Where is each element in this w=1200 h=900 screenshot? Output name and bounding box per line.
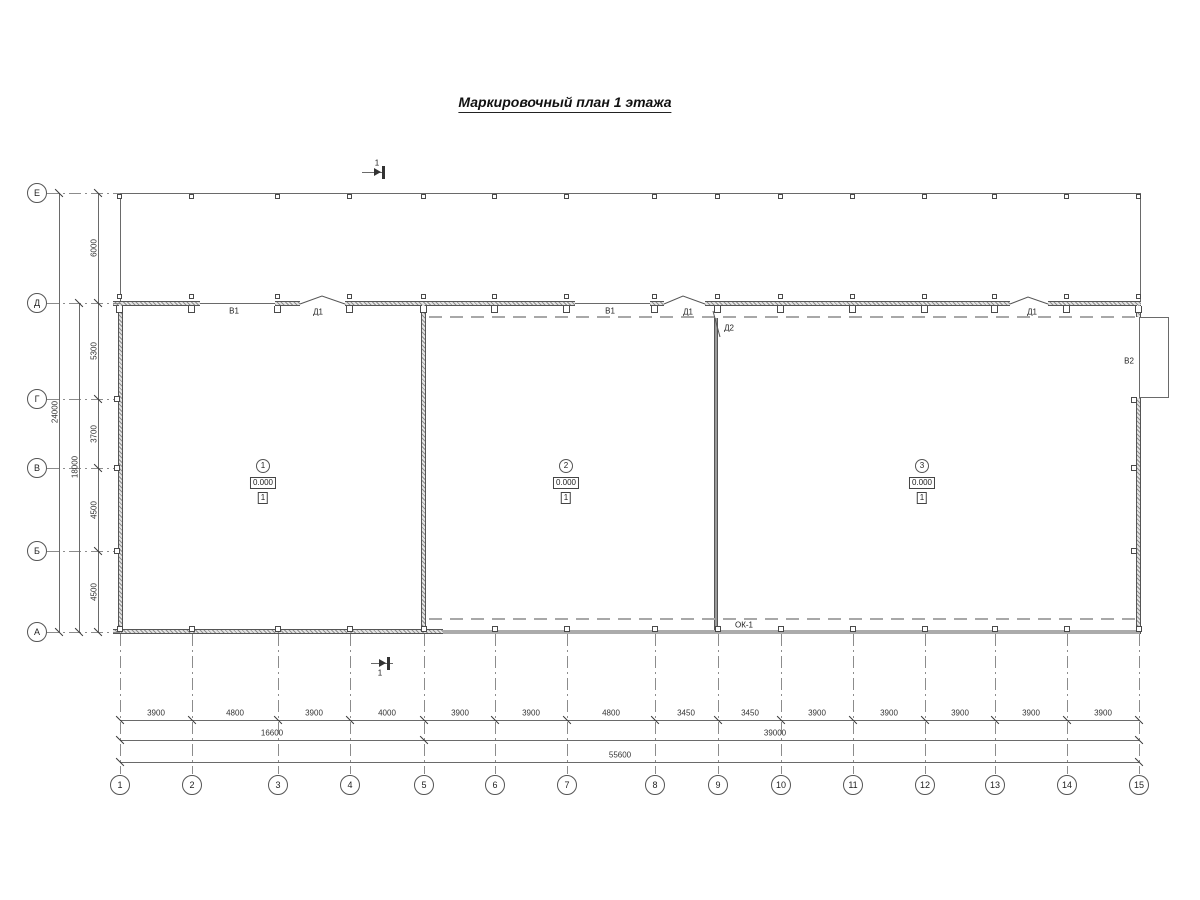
- column-symbol: [1135, 306, 1142, 313]
- dim-line: [98, 193, 99, 632]
- column-marker: [564, 294, 569, 299]
- column-marker: [492, 626, 498, 632]
- column-marker: [275, 194, 280, 199]
- col-grid-line: [1067, 634, 1068, 774]
- column-marker: [117, 294, 122, 299]
- dim-label: 3900: [522, 709, 540, 718]
- gate-label: В1: [605, 307, 615, 316]
- room-elevation: 0.000: [250, 477, 276, 489]
- column-symbol: [849, 306, 856, 313]
- grid-col-bubble: 4: [340, 775, 360, 795]
- room-floor-type: 1: [917, 492, 927, 504]
- col-grid-line: [995, 634, 996, 774]
- room-elevation: 0.000: [909, 477, 935, 489]
- column-marker: [992, 626, 998, 632]
- col-grid-line: [853, 634, 854, 774]
- section-arrow-icon: [379, 659, 386, 667]
- room-floor-type: 1: [561, 492, 571, 504]
- grid-row-bubble: Д: [27, 293, 47, 313]
- column-symbol: [1063, 306, 1070, 313]
- column-marker: [778, 294, 783, 299]
- col-grid-line: [718, 634, 719, 774]
- grid-row-bubble: Б: [27, 541, 47, 561]
- column-marker: [189, 294, 194, 299]
- section-mark-label: 1: [375, 159, 379, 168]
- grid-col-bubble: 15: [1129, 775, 1149, 795]
- col-grid-line: [655, 634, 656, 774]
- column-marker: [1064, 294, 1069, 299]
- column-marker: [189, 194, 194, 199]
- grid-row-bubble: А: [27, 622, 47, 642]
- dim-label: 4800: [602, 709, 620, 718]
- col-grid-line: [120, 634, 121, 774]
- column-marker: [275, 294, 280, 299]
- column-marker: [564, 626, 570, 632]
- column-marker: [1136, 626, 1142, 632]
- column-marker: [992, 294, 997, 299]
- door-label: Д1: [1027, 308, 1037, 317]
- column-marker: [1131, 465, 1137, 471]
- door-label: Д1: [683, 308, 693, 317]
- column-marker: [492, 194, 497, 199]
- col-grid-line: [781, 634, 782, 774]
- grid-col-bubble: 5: [414, 775, 434, 795]
- dim-label: 24000: [51, 401, 60, 423]
- dim-label: 39000: [764, 729, 786, 738]
- grid-col-bubble: 11: [843, 775, 863, 795]
- column-symbol: [563, 306, 570, 313]
- column-marker: [114, 465, 120, 471]
- col-grid-line: [192, 634, 193, 774]
- column-marker: [715, 294, 720, 299]
- column-marker: [652, 626, 658, 632]
- dim-label: 3900: [808, 709, 826, 718]
- column-marker: [850, 626, 856, 632]
- col-grid-line: [278, 634, 279, 774]
- column-symbol: [991, 306, 998, 313]
- column-marker: [652, 194, 657, 199]
- column-marker: [421, 194, 426, 199]
- column-symbol: [714, 306, 721, 313]
- column-marker: [117, 194, 122, 199]
- column-marker: [778, 626, 784, 632]
- column-marker: [117, 626, 123, 632]
- column-marker: [347, 294, 352, 299]
- gate-label: В2: [1124, 357, 1134, 366]
- grid-col-bubble: 3: [268, 775, 288, 795]
- row-grid-line: [47, 551, 120, 552]
- grid-col-bubble: 14: [1057, 775, 1077, 795]
- section-mark-label: 1: [378, 669, 382, 678]
- dim-label: 3700: [90, 425, 99, 443]
- door-label: Д2: [724, 324, 734, 333]
- window-label: ОК-1: [735, 621, 753, 630]
- column-marker: [850, 194, 855, 199]
- column-marker: [1131, 548, 1137, 554]
- section-bar: [382, 166, 385, 179]
- column-symbol: [777, 306, 784, 313]
- room-number-bubble: 2: [559, 459, 573, 473]
- col-grid-line: [350, 634, 351, 774]
- room-number-bubble: 1: [256, 459, 270, 473]
- dim-label: 18000: [71, 456, 80, 478]
- grid-row-bubble: В: [27, 458, 47, 478]
- grid-col-bubble: 9: [708, 775, 728, 795]
- column-marker: [715, 194, 720, 199]
- dim-label: 3450: [677, 709, 695, 718]
- dim-label: 16600: [261, 729, 283, 738]
- col-grid-line: [925, 634, 926, 774]
- column-marker: [114, 396, 120, 402]
- grid-row-bubble: Е: [27, 183, 47, 203]
- column-symbol: [188, 306, 195, 313]
- dim-label: 3900: [305, 709, 323, 718]
- dim-label: 4500: [90, 583, 99, 601]
- grid-col-bubble: 6: [485, 775, 505, 795]
- section-bar: [387, 657, 390, 670]
- dim-line: [120, 762, 1139, 763]
- column-symbol: [420, 306, 427, 313]
- column-symbol: [346, 306, 353, 313]
- room-number-bubble: 3: [915, 459, 929, 473]
- row-grid-line: [47, 303, 120, 304]
- grid-col-bubble: 13: [985, 775, 1005, 795]
- dim-label: 3900: [880, 709, 898, 718]
- grid-col-bubble: 12: [915, 775, 935, 795]
- column-marker: [922, 294, 927, 299]
- col-grid-line: [495, 634, 496, 774]
- dim-label: 4500: [90, 501, 99, 519]
- column-symbol: [274, 306, 281, 313]
- column-marker: [421, 294, 426, 299]
- grid-col-bubble: 7: [557, 775, 577, 795]
- dim-label: 3900: [147, 709, 165, 718]
- column-marker: [347, 194, 352, 199]
- row-grid-line: [47, 399, 120, 400]
- column-marker: [992, 194, 997, 199]
- column-marker: [922, 194, 927, 199]
- column-marker: [1064, 194, 1069, 199]
- column-marker: [1131, 397, 1137, 403]
- dim-label: 3900: [1022, 709, 1040, 718]
- dim-line: [120, 720, 1139, 721]
- column-symbol: [921, 306, 928, 313]
- grid-col-bubble: 10: [771, 775, 791, 795]
- dim-label: 3450: [741, 709, 759, 718]
- column-marker: [715, 626, 721, 632]
- grid-col-bubble: 2: [182, 775, 202, 795]
- column-symbol: [116, 306, 123, 313]
- column-marker: [189, 626, 195, 632]
- dim-label: 5300: [90, 342, 99, 360]
- section-arrow-icon: [374, 168, 381, 176]
- column-marker: [564, 194, 569, 199]
- column-marker: [850, 294, 855, 299]
- floor-plan-canvas: Маркировочный план 1 этажа В1 Д1 В1 Д1 Д…: [0, 0, 1200, 900]
- column-marker: [492, 294, 497, 299]
- door-symbols: [0, 0, 1200, 900]
- dim-label: 6000: [90, 239, 99, 257]
- column-symbol: [651, 306, 658, 313]
- dim-label: 55600: [609, 751, 631, 760]
- col-grid-line: [1139, 634, 1140, 774]
- col-grid-line: [567, 634, 568, 774]
- room-floor-type: 1: [258, 492, 268, 504]
- dim-label: 3900: [1094, 709, 1112, 718]
- gate-label: В1: [229, 307, 239, 316]
- grid-col-bubble: 8: [645, 775, 665, 795]
- column-marker: [114, 548, 120, 554]
- column-marker: [922, 626, 928, 632]
- room-elevation: 0.000: [553, 477, 579, 489]
- column-marker: [421, 626, 427, 632]
- column-symbol: [491, 306, 498, 313]
- column-marker: [1136, 294, 1141, 299]
- grid-row-bubble: Г: [27, 389, 47, 409]
- column-marker: [652, 294, 657, 299]
- column-marker: [275, 626, 281, 632]
- column-marker: [1136, 194, 1141, 199]
- door-label: Д1: [313, 308, 323, 317]
- dim-label: 3900: [951, 709, 969, 718]
- column-marker: [1064, 626, 1070, 632]
- dim-label: 4800: [226, 709, 244, 718]
- column-marker: [778, 194, 783, 199]
- dim-line: [120, 740, 1139, 741]
- grid-col-bubble: 1: [110, 775, 130, 795]
- row-grid-line: [47, 468, 120, 469]
- col-grid-line: [424, 634, 425, 774]
- dim-label: 3900: [451, 709, 469, 718]
- column-marker: [347, 626, 353, 632]
- dim-label: 4000: [378, 709, 396, 718]
